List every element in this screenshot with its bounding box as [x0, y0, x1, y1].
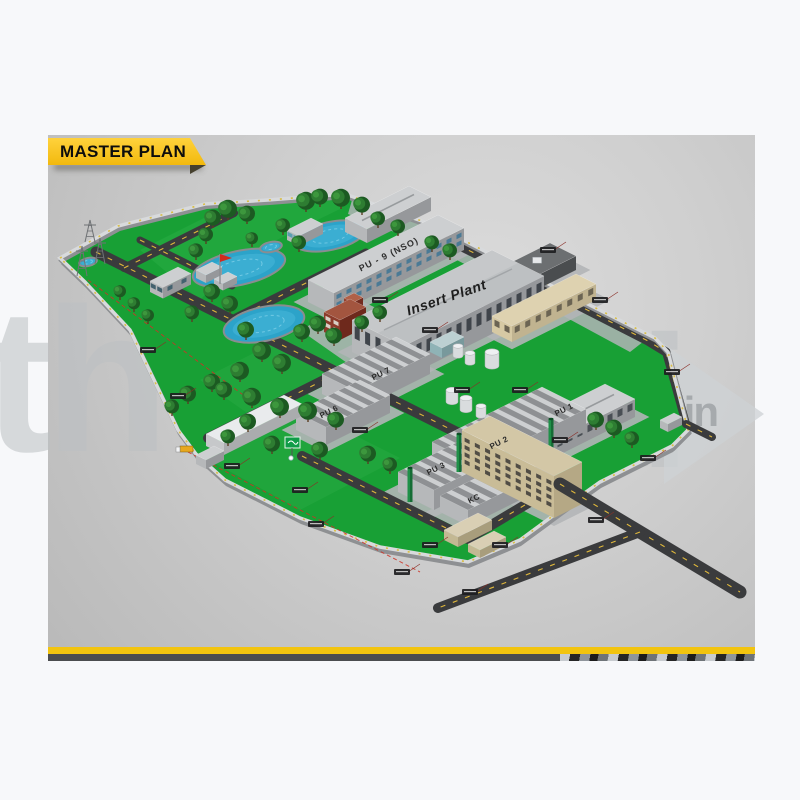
page-title: MASTER PLAN: [60, 142, 186, 162]
master-plan-ribbon: MASTER PLAN: [48, 138, 206, 165]
footer-hazard-stripe: [560, 654, 755, 661]
ribbon-fold: [190, 165, 206, 174]
site-plan-illustration: Insert Plant PU - 9 (NSO) PU 7 PU 6 PU 1…: [0, 0, 800, 800]
footer-yellow-stripe: [48, 647, 755, 654]
footer-dark-stripe: [48, 654, 755, 661]
